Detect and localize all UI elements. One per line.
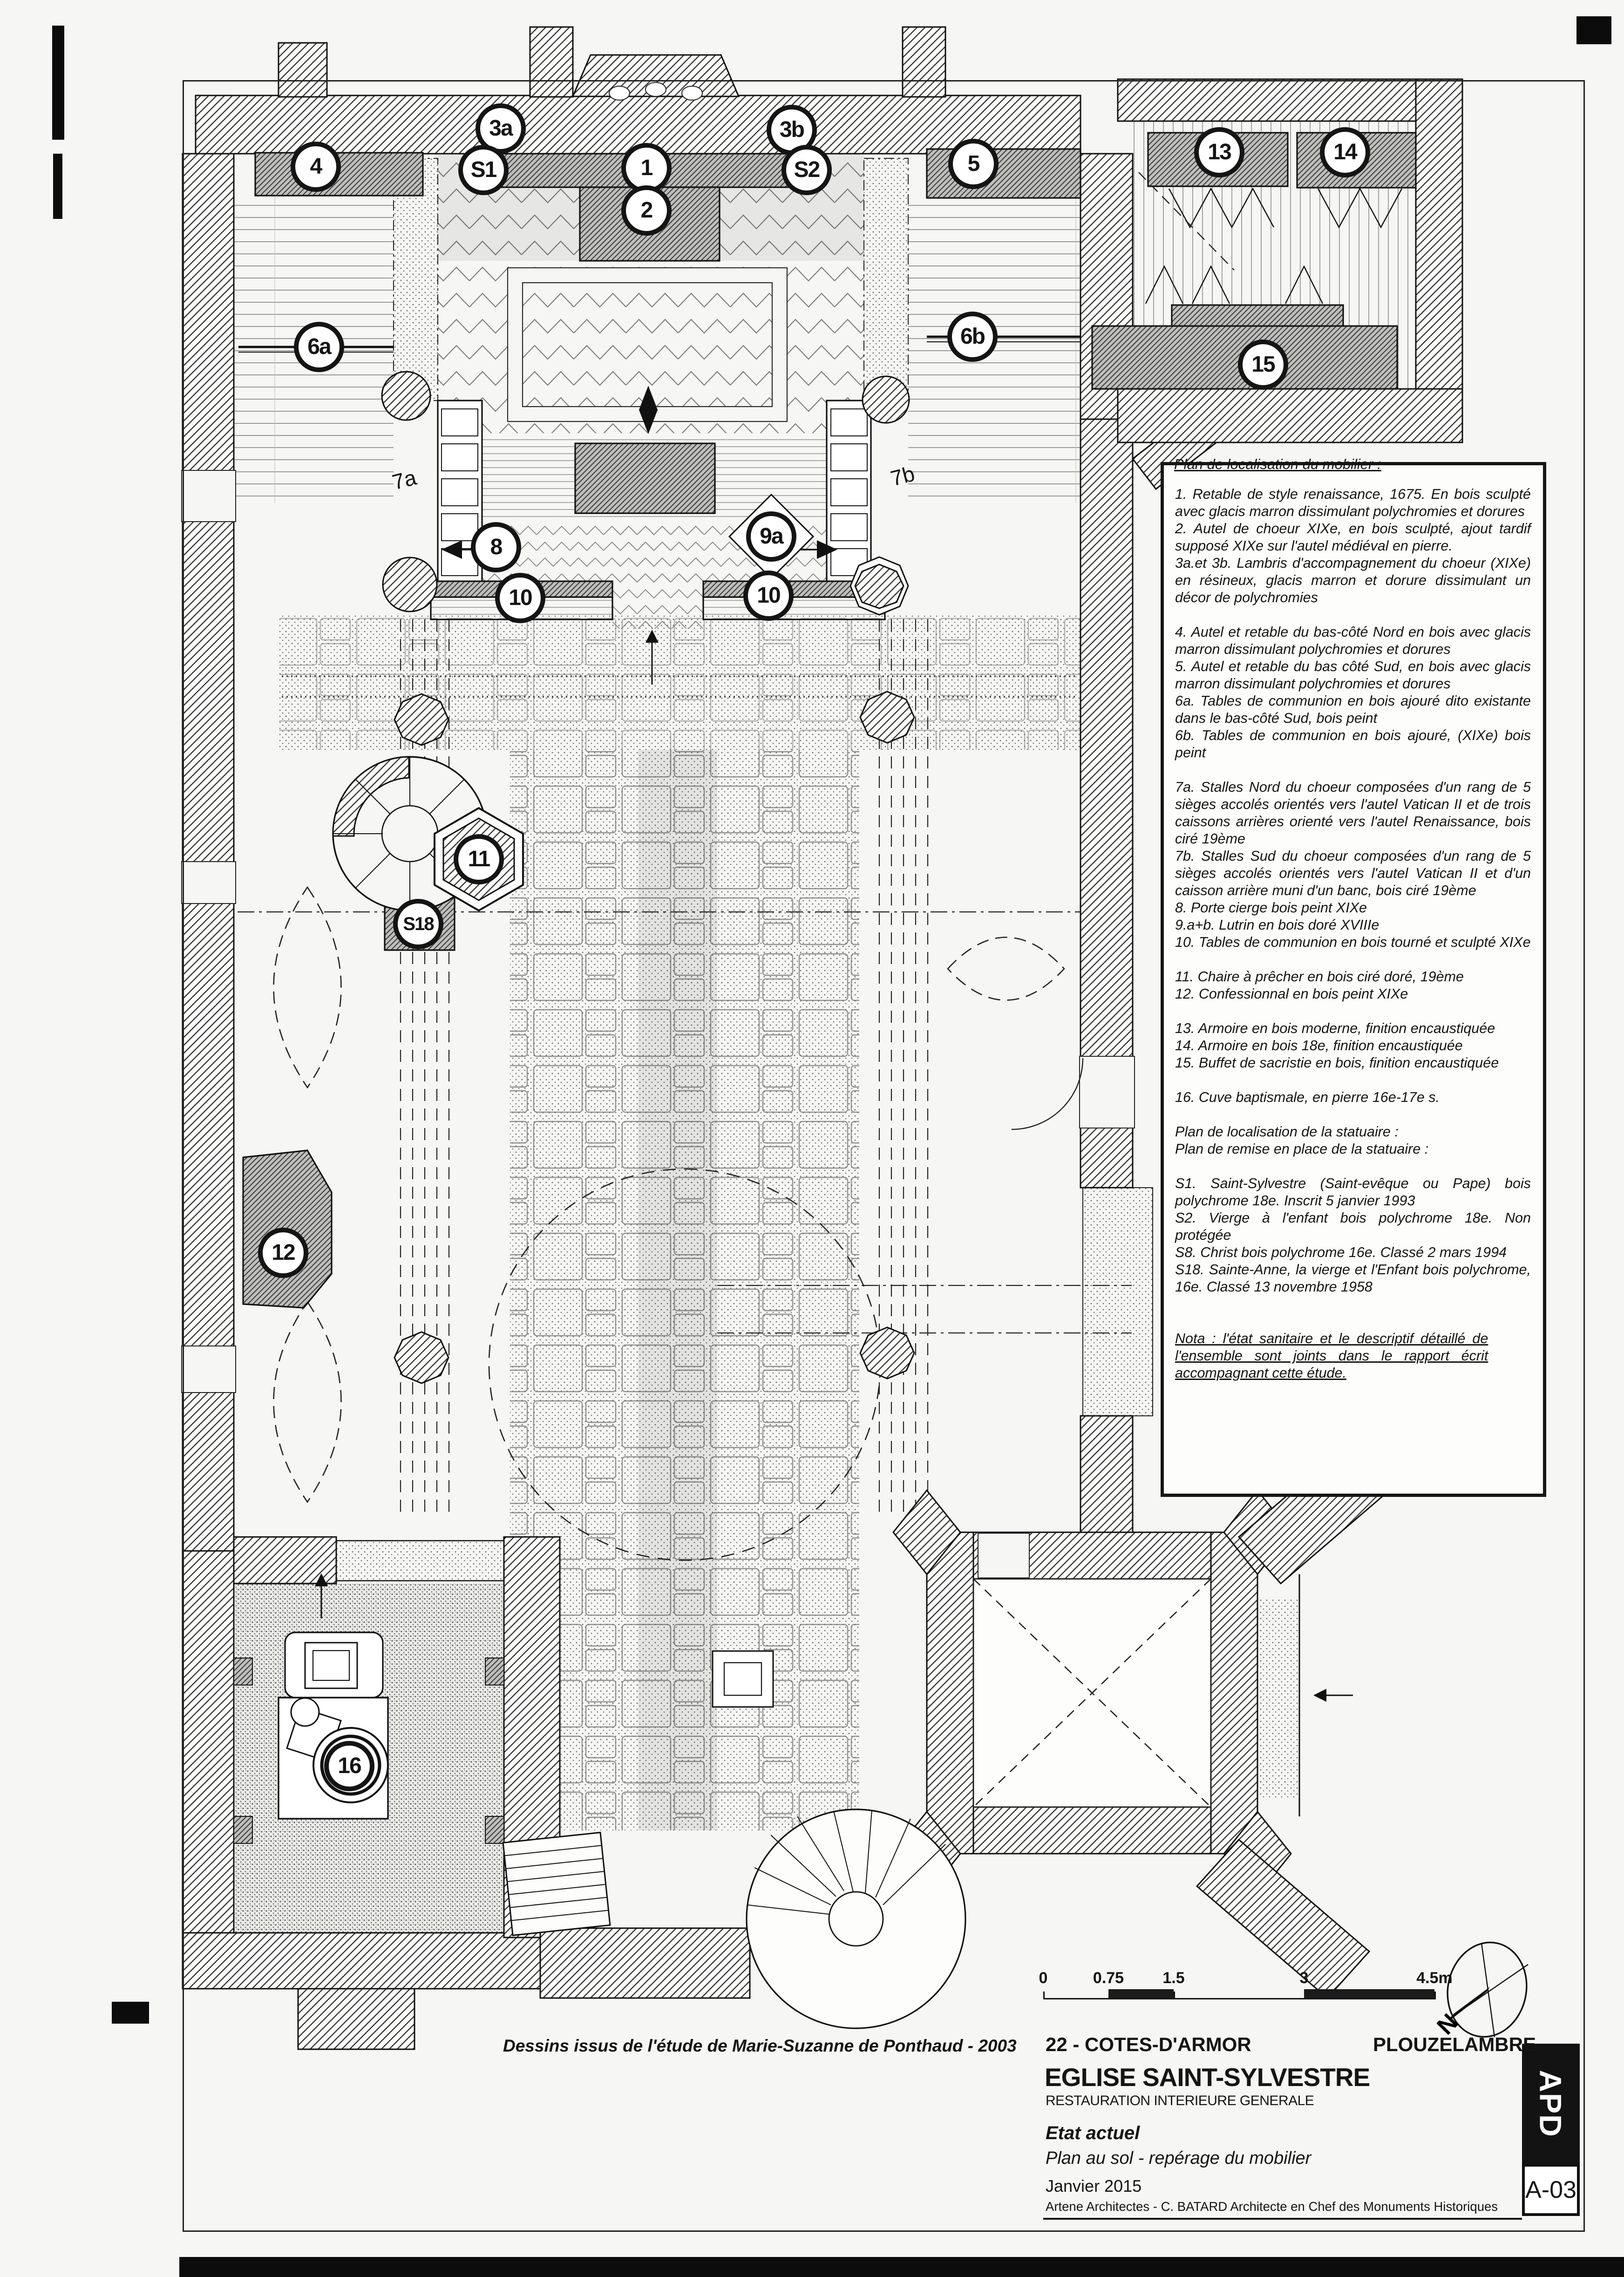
plan-marker-S18: S18 [393, 899, 443, 949]
scan-artifact-caption-left [112, 2002, 149, 2024]
scale-tick-label: 0.75 [1093, 1969, 1124, 1987]
legend-nota: Nota : l'état sanitaire et le descriptif… [1175, 1330, 1488, 1382]
study-credit-caption: Dessins issus de l'étude de Marie-Suzann… [503, 2036, 1017, 2056]
plan-marker-7b: 7b [889, 462, 917, 489]
plan-marker-7a: 7a [390, 466, 419, 493]
legend-section: 4. Autel et retable du bas-côté Nord en … [1175, 624, 1531, 761]
plan-marker-15: 15 [1238, 340, 1288, 390]
scale-tick [1043, 1992, 1045, 1999]
north-compass-icon: N [1437, 1937, 1537, 2047]
legend-section: 16. Cuve baptismale, en pierre 16e-17e s… [1175, 1089, 1531, 1106]
plan-marker-13: 13 [1194, 127, 1244, 177]
architects-label: Artene Architectes - C. BATARD Architect… [1046, 2199, 1498, 2214]
scale-filled-segment [1108, 1989, 1174, 1998]
scale-tick-label: 1.5 [1162, 1969, 1184, 1987]
legend-item: S18. Sainte-Anne, la vierge et l'Enfant … [1175, 1261, 1531, 1296]
plan-marker-4: 4 [291, 142, 341, 192]
legend-section: 13. Armoire en bois moderne, finition en… [1175, 1020, 1531, 1072]
scale-tick-label: 0 [1039, 1969, 1048, 1987]
legend-item: 11. Chaire à prêcher en bois ciré doré, … [1175, 968, 1531, 986]
plan-marker-10: 10 [743, 571, 794, 621]
legend-item: 4. Autel et retable du bas-côté Nord en … [1175, 624, 1531, 658]
scan-artifact-top-right [1576, 16, 1611, 44]
plan-marker-2: 2 [621, 185, 672, 236]
date-label: Janvier 2015 [1046, 2176, 1142, 2196]
legend-title: Plan de localisation du mobilier : [1174, 455, 1381, 473]
legend-section: 7a. Stalles Nord du choeur composées d'u… [1175, 779, 1531, 951]
legend-item: 12. Confessionnal en bois peint XIXe [1175, 986, 1531, 1003]
plan-marker-5: 5 [948, 139, 999, 189]
legend-section: 1. Retable de style renaissance, 1675. E… [1175, 486, 1531, 606]
scale-tick [1434, 1992, 1436, 1999]
legend-item: 2. Autel de choeur XIXe, en bois sculpté… [1175, 520, 1531, 555]
legend-item: 10. Tables de communion en bois tourné e… [1175, 934, 1531, 951]
legend-section: Plan de localisation de la statuaire :Pl… [1175, 1123, 1531, 1158]
legend-item: 5. Autel et retable du bas côté Sud, en … [1175, 658, 1531, 693]
legend-section: 11. Chaire à prêcher en bois ciré doré, … [1175, 968, 1531, 1003]
legend-item: S2. Vierge à l'enfant bois polychrome 18… [1175, 1210, 1531, 1244]
legend-body: 1. Retable de style renaissance, 1675. E… [1175, 486, 1531, 1296]
plan-marker-6a: 6a [294, 322, 344, 372]
legend-item: 3a.et 3b. Lambris d'accompagnement du ch… [1175, 555, 1531, 606]
legend-panel: Plan de localisation du mobilier : 1. Re… [1161, 462, 1546, 1497]
legend-item: 13. Armoire en bois moderne, finition en… [1175, 1020, 1531, 1037]
scale-tick [1174, 1992, 1175, 1999]
legend-item: 16. Cuve baptismale, en pierre 16e-17e s… [1175, 1089, 1531, 1106]
legend-item: 8. Porte cierge bois peint XIXe [1175, 899, 1531, 917]
legend-item: S1. Saint-Sylvestre (Saint-evêque ou Pap… [1175, 1175, 1531, 1210]
legend-item: 1. Retable de style renaissance, 1675. E… [1175, 486, 1531, 520]
legend-item: 9.a+b. Lutrin en bois doré XVIIIe [1175, 917, 1531, 934]
legend-item: 7b. Stalles Sud du choeur composées d'un… [1175, 848, 1531, 899]
scan-artifact-left [53, 154, 62, 219]
scale-bar: 00.751.534.5m [1043, 1969, 1434, 2006]
plan-marker-16: 16 [324, 1741, 374, 1791]
scan-artifact-left-top [52, 26, 64, 140]
plan-marker-14: 14 [1320, 127, 1370, 177]
plan-marker-6b: 6b [947, 312, 998, 362]
drawing-title: Plan au sol - repérage du mobilier [1046, 2148, 1311, 2168]
scanned-plan-sheet: { "sheet": { "caption": "Dessins issus d… [0, 0, 1624, 2277]
commune-label: PLOUZELAMBRE [1373, 2033, 1536, 2056]
state-label: Etat actuel [1046, 2123, 1140, 2144]
legend-item: 14. Armoire en bois 18e, finition encaus… [1175, 1037, 1531, 1054]
plan-marker-S2: S2 [781, 145, 832, 195]
legend-item: Plan de localisation de la statuaire : [1175, 1123, 1531, 1141]
scale-filled-segment [1304, 1989, 1434, 1998]
legend-item: 6b. Tables de communion en bois ajouré, … [1175, 727, 1531, 761]
legend-item: 6a. Tables de communion en bois ajouré d… [1175, 693, 1531, 727]
plan-marker-12: 12 [258, 1228, 308, 1278]
plan-marker-9a: 9a [746, 511, 796, 562]
plan-marker-10: 10 [495, 573, 545, 623]
project-title: EGLISE SAINT-SYLVESTRE [1045, 2062, 1370, 2092]
plan-marker-S1: S1 [458, 145, 509, 195]
legend-item: S8. Christ bois polychrome 16e. Classé 2… [1175, 1244, 1531, 1261]
legend-item: 15. Buffet de sacristie en bois, finitio… [1175, 1054, 1531, 1072]
department-label: 22 - COTES-D'ARMOR [1046, 2033, 1251, 2056]
legend-section: S1. Saint-Sylvestre (Saint-evêque ou Pap… [1175, 1175, 1531, 1296]
scale-tick-label: 3 [1300, 1969, 1309, 1987]
scan-artifact-bottom [179, 2257, 1624, 2277]
project-subtitle: RESTAURATION INTERIEURE GENERALE [1046, 2093, 1314, 2109]
plan-marker-8: 8 [471, 522, 521, 572]
legend-item: 7a. Stalles Nord du choeur composées d'u… [1175, 779, 1531, 848]
legend-item: Plan de remise en place de la statuaire … [1175, 1141, 1531, 1158]
plan-marker-11: 11 [454, 834, 504, 884]
